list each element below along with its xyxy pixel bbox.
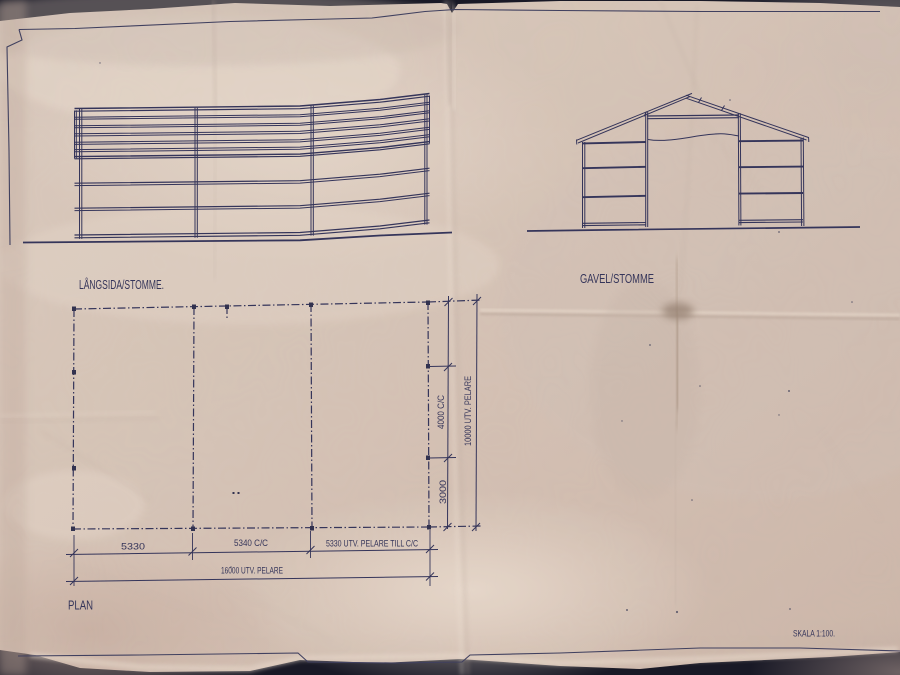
svg-text:SKALA 1:100.: SKALA 1:100. (793, 629, 835, 640)
svg-text:16000 UTV. PELARE: 16000 UTV. PELARE (221, 566, 283, 577)
svg-text:5330 UTV. PELARE TILL C/C: 5330 UTV. PELARE TILL C/C (326, 539, 418, 550)
svg-text:LÅNGSIDA/STOMME.: LÅNGSIDA/STOMME. (79, 277, 164, 292)
svg-text:10000 UTV. PELARE: 10000 UTV. PELARE (463, 376, 474, 446)
svg-text:GAVEL/STOMME: GAVEL/STOMME (580, 271, 654, 286)
svg-text:5330: 5330 (121, 542, 145, 553)
svg-text:3000: 3000 (438, 480, 449, 504)
svg-text:4000 C/C: 4000 C/C (436, 395, 447, 429)
svg-text:PLAN: PLAN (68, 599, 93, 613)
svg-text:5340 C/C: 5340 C/C (234, 538, 268, 549)
